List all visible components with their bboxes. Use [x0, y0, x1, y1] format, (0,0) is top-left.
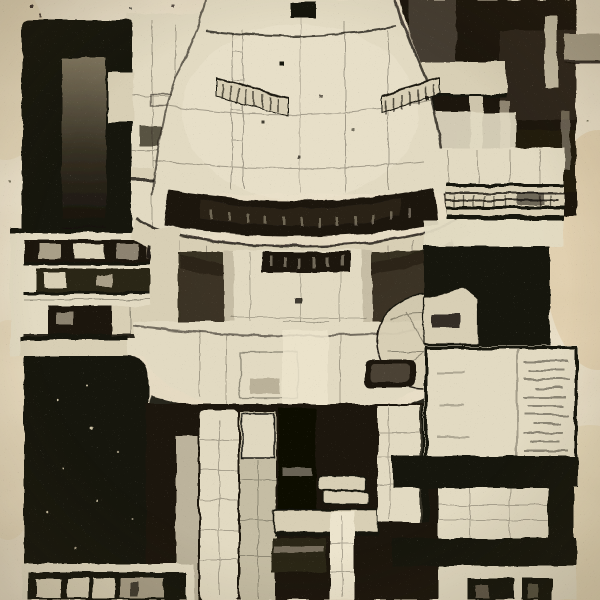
etching-canvas [0, 0, 600, 600]
etching-artwork [0, 0, 600, 600]
print-grain-overlay [0, 0, 600, 600]
